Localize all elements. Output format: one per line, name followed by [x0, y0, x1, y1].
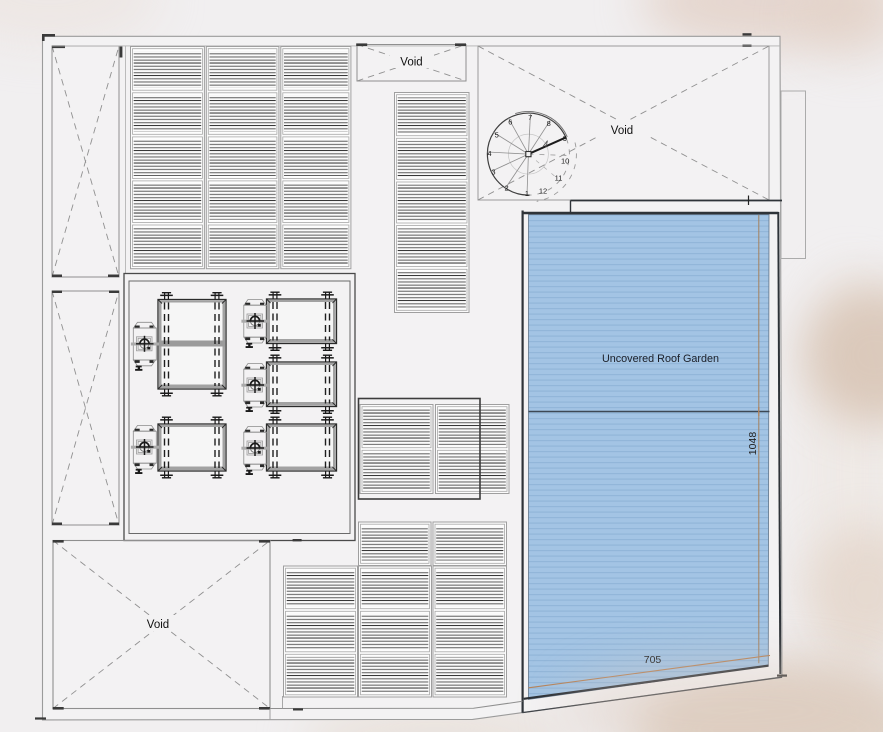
svg-text:6: 6 [508, 118, 512, 127]
svg-text:1: 1 [525, 189, 529, 198]
svg-text:8: 8 [547, 119, 551, 128]
svg-text:Void: Void [400, 57, 422, 69]
svg-text:7: 7 [528, 113, 532, 122]
svg-text:9: 9 [563, 134, 567, 143]
svg-text:1048: 1048 [747, 432, 759, 456]
svg-text:10: 10 [561, 156, 569, 165]
svg-text:4: 4 [487, 149, 491, 158]
svg-text:5: 5 [495, 131, 499, 140]
svg-text:2: 2 [505, 183, 509, 192]
svg-text:Void: Void [611, 125, 633, 137]
svg-text:11: 11 [555, 174, 563, 183]
svg-text:3: 3 [491, 167, 495, 176]
svg-text:Void: Void [147, 619, 169, 631]
svg-text:12: 12 [539, 187, 547, 196]
svg-text:Uncovered Roof Garden: Uncovered Roof Garden [602, 353, 719, 365]
